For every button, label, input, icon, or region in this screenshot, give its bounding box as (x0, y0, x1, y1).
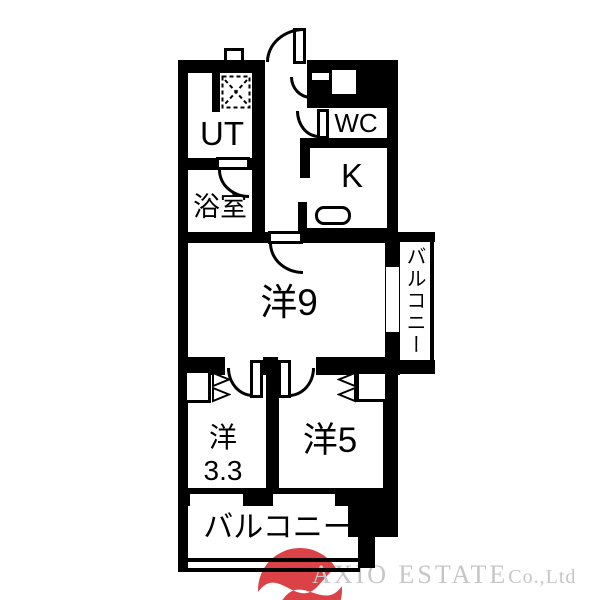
window-west3 (190, 494, 243, 506)
logo-company-name: AXIO ESTATE (312, 560, 508, 589)
west5-closet (356, 371, 388, 402)
wall-notch (224, 48, 244, 63)
room-label-west5: 洋5 (295, 423, 365, 460)
balcony-rail-line-1 (184, 558, 360, 562)
wall-kitchen-bottom (298, 228, 398, 243)
room-label-kitchen: K (330, 159, 374, 194)
room-label-west3: 洋 3.3 (188, 421, 258, 487)
room-label-balcony-right: バルコニー (403, 246, 424, 358)
west3-folding-door-icon (211, 371, 231, 404)
bath-door-leaf (216, 157, 250, 170)
logo-text: AXIO ESTATECo.,Ltd (312, 560, 576, 590)
wall-washer-divider (212, 72, 220, 112)
west5-folding-door-icon (337, 371, 357, 404)
wc-door-arc-icon (296, 111, 319, 138)
wall-ut-corridor (252, 60, 265, 243)
shoe-closet (329, 67, 359, 97)
ut-alcove (188, 73, 212, 112)
room-label-west3-line2: 3.3 (188, 454, 258, 487)
logo-company-suffix: Co.,Ltd (508, 566, 576, 588)
window-west5 (273, 494, 335, 506)
wall-bath-bottom (178, 232, 268, 243)
west5-door-arc-icon (289, 368, 315, 397)
window-balcony-right (386, 267, 399, 332)
room-label-west3-line1: 洋 (188, 421, 258, 454)
washer-place-icon (221, 75, 251, 109)
room-label-bath: 浴室 (190, 193, 250, 221)
wall-wc-bottom (300, 138, 398, 148)
wall-corridor-kitchen-1 (300, 138, 310, 178)
west9-door-arc-icon (269, 243, 303, 274)
balcony-right-rail (430, 242, 434, 362)
floorplan-canvas: UT 浴室 WC K 洋9 バルコニー 洋 3.3 洋5 バルコニー AXIO … (0, 0, 600, 600)
entrance-door-arc-icon (266, 28, 304, 62)
wall-balcony-right-top (398, 232, 435, 242)
room-label-balcony-bottom: バルコニー (198, 512, 358, 544)
kitchen-sink-icon (315, 206, 351, 225)
room-label-ut: UT (194, 117, 250, 152)
balcony-step-bar (358, 537, 375, 568)
entry-inner-door-arc-icon (290, 77, 311, 99)
room-label-west9: 洋9 (250, 284, 328, 323)
west3-closet (184, 370, 211, 403)
room-label-wc: WC (330, 110, 382, 137)
balcony-rail-line-2 (184, 568, 360, 572)
